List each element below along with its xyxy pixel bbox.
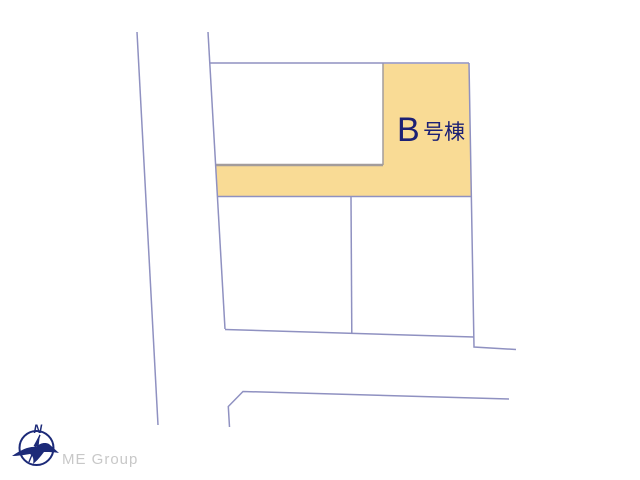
parcel-east-boundary-line <box>469 63 516 350</box>
logo-text: ME Group <box>62 451 138 468</box>
road-west-edge-line <box>137 32 158 425</box>
compass-icon: N <box>12 422 59 465</box>
street-north-edge-line <box>228 392 509 428</box>
lots-south-boundary-line <box>225 330 474 338</box>
lot-b-label-suffix: 号棟 <box>423 121 465 144</box>
site-plan-drawing: B 号棟 N ME Group <box>0 0 640 480</box>
site-plan-page: B 号棟 N ME Group <box>0 0 640 480</box>
lot-b-label-prefix: B <box>397 111 420 149</box>
lot-divider-line <box>351 197 352 334</box>
compass-north-label: N <box>34 422 43 436</box>
